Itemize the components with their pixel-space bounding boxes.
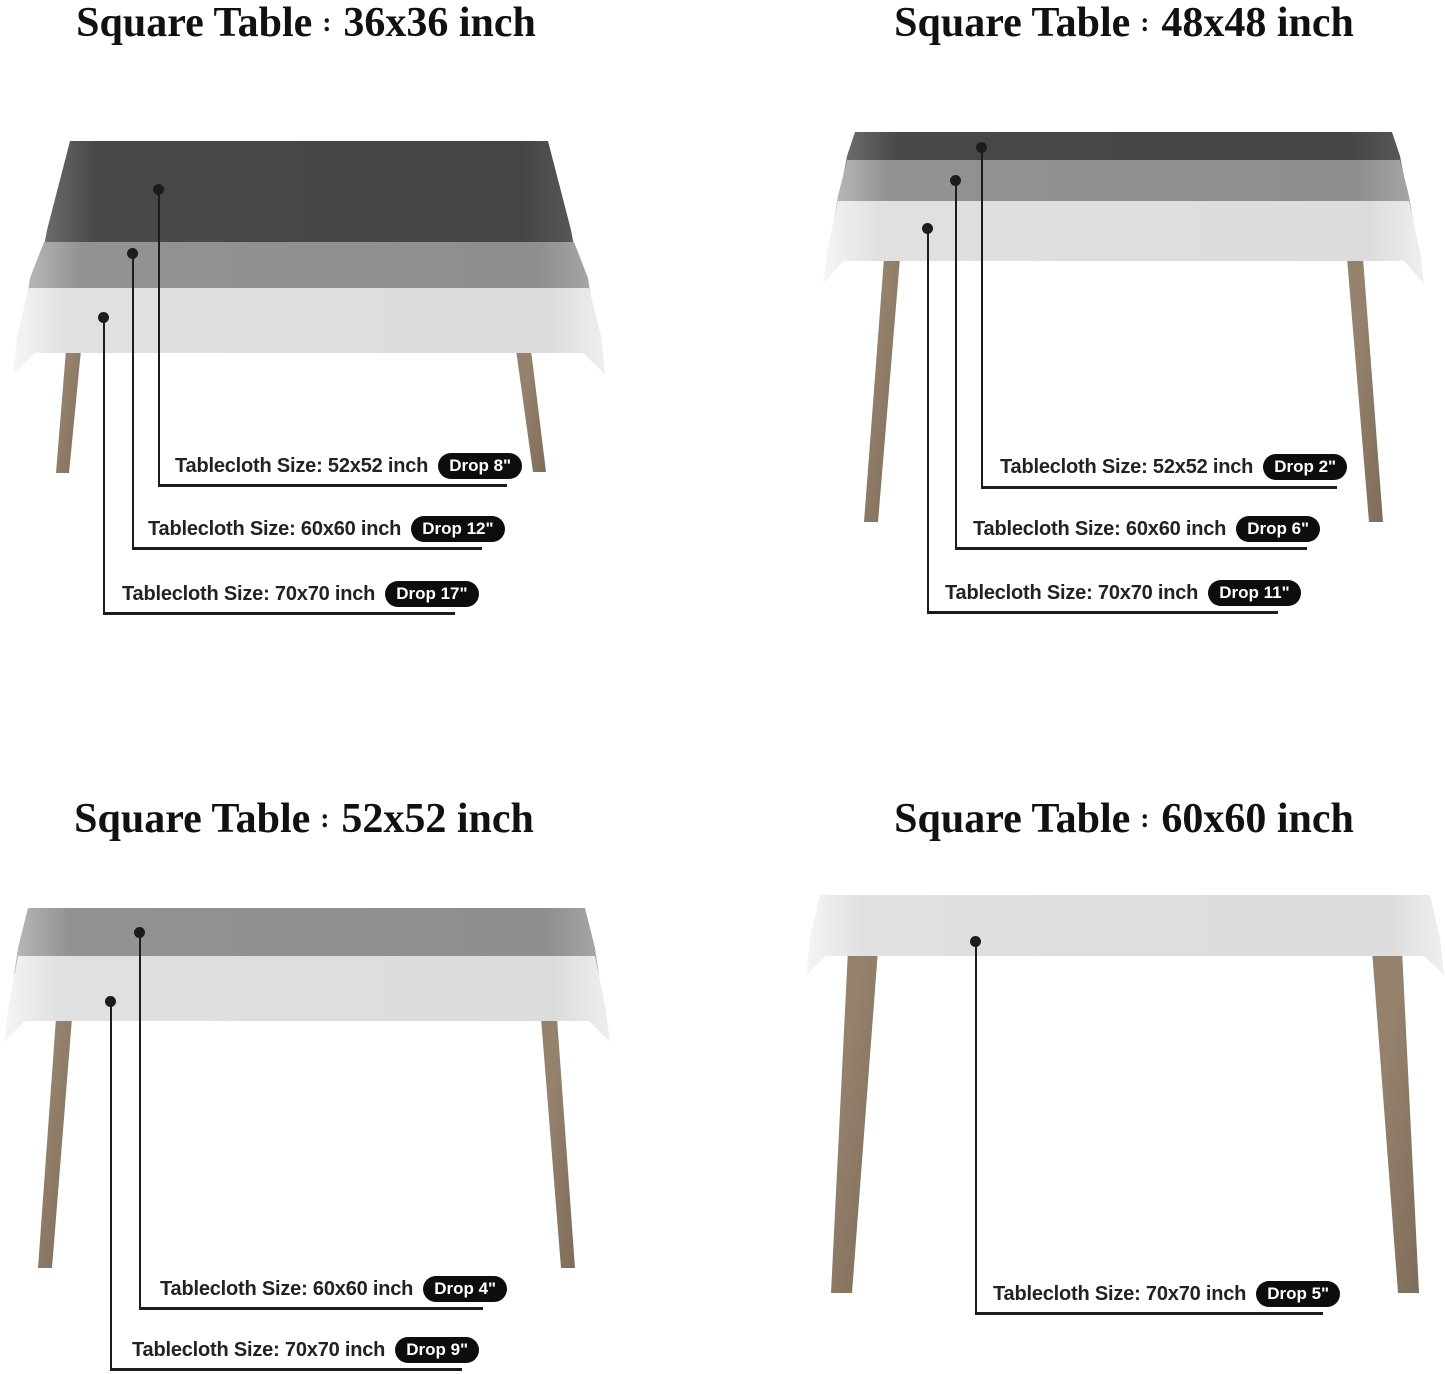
tablecloth-size-label: Tablecloth Size: 60x60 inch — [160, 1278, 413, 1301]
title-size: 52x52 inch — [341, 796, 534, 842]
callout-line — [132, 254, 134, 548]
size-callout: Tablecloth Size: 52x52 inch Drop 2" — [1000, 453, 1347, 481]
tablecloth-size-label: Tablecloth Size: 70x70 inch — [945, 582, 1198, 605]
table-leg-left — [56, 350, 81, 473]
callout-line — [103, 318, 105, 613]
size-callout: Tablecloth Size: 70x70 inch Drop 5" — [993, 1280, 1340, 1308]
tablecloth-size-label: Tablecloth Size: 52x52 inch — [1000, 456, 1253, 479]
table-leg-left — [831, 950, 878, 1293]
drop-badge: Drop 6" — [1236, 516, 1320, 542]
page-title: Square Table:36x36 inch — [76, 0, 536, 51]
title-prefix: Square Table — [894, 0, 1130, 46]
table-leg-right — [1347, 258, 1383, 522]
size-callout: Tablecloth Size: 70x70 inch Drop 11" — [945, 579, 1301, 607]
title-colon: : — [322, 0, 331, 46]
tablecloth-size-guide: Square Table:36x36 inch Tablecloth Size:… — [0, 0, 1445, 1374]
drop-badge: Drop 8" — [438, 453, 522, 479]
callout-line — [158, 190, 160, 485]
callout-line — [110, 1002, 112, 1369]
page-title: Square Table:60x60 inch — [894, 795, 1354, 847]
callout-line — [955, 181, 957, 548]
callout-rule — [158, 484, 507, 487]
tablecloth-size-label: Tablecloth Size: 60x60 inch — [973, 518, 1226, 541]
title-colon: : — [1140, 794, 1149, 842]
size-callout: Tablecloth Size: 60x60 inch Drop 12" — [148, 515, 505, 543]
title-size: 60x60 inch — [1161, 796, 1354, 842]
tablecloth-size-label: Tablecloth Size: 70x70 inch — [132, 1339, 385, 1362]
title-prefix: Square Table — [76, 0, 312, 46]
title-colon: : — [320, 794, 329, 842]
callout-rule — [927, 611, 1278, 614]
size-callout: Tablecloth Size: 60x60 inch Drop 4" — [160, 1275, 507, 1303]
size-callout: Tablecloth Size: 52x52 inch Drop 8" — [175, 452, 522, 480]
callout-rule — [139, 1307, 483, 1310]
size-callout: Tablecloth Size: 70x70 inch Drop 9" — [132, 1336, 479, 1364]
callout-rule — [110, 1368, 462, 1371]
drop-badge: Drop 17" — [385, 581, 478, 607]
tablecloth-layer-70x70 — [4, 956, 610, 1042]
table-leg-right — [1372, 950, 1419, 1293]
callout-line — [139, 933, 141, 1308]
title-prefix: Square Table — [894, 796, 1130, 842]
callout-rule — [955, 547, 1307, 550]
callout-rule — [975, 1312, 1323, 1315]
drop-badge: Drop 4" — [423, 1276, 507, 1302]
table-leg-left — [38, 1018, 72, 1268]
callout-line — [927, 229, 929, 612]
size-callout: Tablecloth Size: 60x60 inch Drop 6" — [973, 515, 1320, 543]
tablecloth-size-label: Tablecloth Size: 52x52 inch — [175, 455, 428, 478]
title-prefix: Square Table — [74, 796, 310, 842]
callout-rule — [132, 547, 482, 550]
drop-badge: Drop 5" — [1256, 1281, 1340, 1307]
tablecloth-layer-70x70 — [823, 201, 1424, 284]
size-callout: Tablecloth Size: 70x70 inch Drop 17" — [122, 580, 479, 608]
tablecloth-size-label: Tablecloth Size: 70x70 inch — [122, 583, 375, 606]
drop-badge: Drop 2" — [1263, 454, 1347, 480]
drop-badge: Drop 12" — [411, 516, 504, 542]
callout-line — [975, 942, 977, 1313]
callout-rule — [103, 612, 455, 615]
tablecloth-size-label: Tablecloth Size: 70x70 inch — [993, 1283, 1246, 1306]
table-leg-right — [541, 1018, 575, 1268]
tablecloth-layer-70x70 — [13, 288, 605, 374]
callout-line — [981, 148, 983, 487]
page-title: Square Table:52x52 inch — [74, 795, 534, 847]
tablecloth-size-label: Tablecloth Size: 60x60 inch — [148, 518, 401, 541]
title-colon: : — [1140, 0, 1149, 46]
tablecloth-layer-70x70 — [806, 895, 1444, 975]
table-leg-left — [864, 258, 900, 522]
drop-badge: Drop 9" — [395, 1337, 479, 1363]
title-size: 48x48 inch — [1161, 0, 1354, 46]
drop-badge: Drop 11" — [1208, 580, 1300, 606]
page-title: Square Table:48x48 inch — [894, 0, 1354, 51]
callout-rule — [981, 486, 1337, 489]
title-size: 36x36 inch — [343, 0, 536, 46]
